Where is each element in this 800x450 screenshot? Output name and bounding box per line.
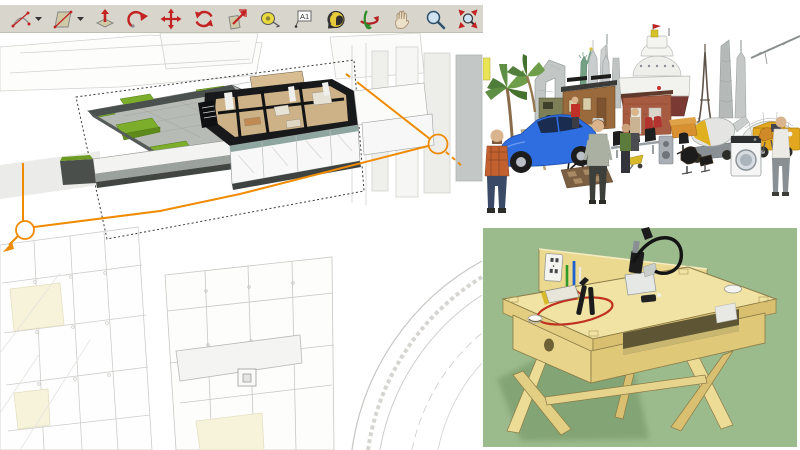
paint-bucket-button[interactable] — [323, 6, 349, 32]
tape-measure-button[interactable] — [257, 6, 283, 32]
sketchup-window: A1 — [0, 0, 483, 450]
zoom-magnifier-icon — [424, 8, 446, 30]
shapes-tool-button[interactable] — [50, 6, 76, 32]
speaker-box — [659, 136, 673, 164]
desk-model-image — [483, 227, 800, 450]
shapes-tool-icon — [52, 8, 74, 30]
model-viewport[interactable] — [0, 33, 483, 450]
pan-hand-icon — [391, 8, 413, 30]
orbit-button[interactable] — [356, 6, 382, 32]
orbit-icon — [358, 8, 380, 30]
facade-linework-left — [0, 227, 152, 450]
push-pull-icon — [94, 8, 116, 30]
scale-icon — [226, 8, 248, 30]
rotate-button[interactable] — [191, 6, 217, 32]
grommet-hole-right — [725, 285, 742, 293]
text-tool-label: A1 — [300, 12, 309, 21]
chevron-down-icon — [76, 8, 85, 30]
shapes-tool-dropdown[interactable] — [76, 6, 85, 32]
follow-me-button[interactable] — [125, 6, 151, 32]
desk-scene — [483, 227, 800, 450]
warehouse-collage — [483, 0, 800, 226]
move-icon — [160, 8, 182, 30]
arc-tool-dropdown[interactable] — [34, 6, 43, 32]
yellow-sign — [483, 58, 490, 80]
power-outlet — [544, 253, 563, 281]
facade-linework-middle — [165, 257, 334, 450]
getting-started-toolbar: A1 — [0, 5, 483, 33]
chevron-down-icon — [34, 8, 43, 30]
warehouse-collage-image — [483, 0, 800, 226]
text-tool-icon: A1 — [292, 8, 314, 30]
sketchup-composite-screenshot: A1 — [0, 0, 800, 450]
rotate-icon — [193, 8, 215, 30]
zoom-extents-icon — [457, 8, 479, 30]
scale-button[interactable] — [224, 6, 250, 32]
move-button[interactable] — [158, 6, 184, 32]
arc-tool-icon — [10, 8, 32, 30]
zoom-extents-button[interactable] — [455, 6, 481, 32]
washing-machine — [731, 136, 761, 176]
text-tool-button[interactable]: A1 — [290, 6, 316, 32]
model-scene — [0, 33, 483, 450]
curved-structure-arcs — [352, 261, 482, 450]
paint-bucket-icon — [325, 8, 347, 30]
follow-me-icon — [127, 8, 149, 30]
tape-measure-icon — [259, 8, 281, 30]
arc-tool-button[interactable] — [8, 6, 34, 32]
push-pull-button[interactable] — [92, 6, 118, 32]
pan-button[interactable] — [389, 6, 415, 32]
zoom-button[interactable] — [422, 6, 448, 32]
